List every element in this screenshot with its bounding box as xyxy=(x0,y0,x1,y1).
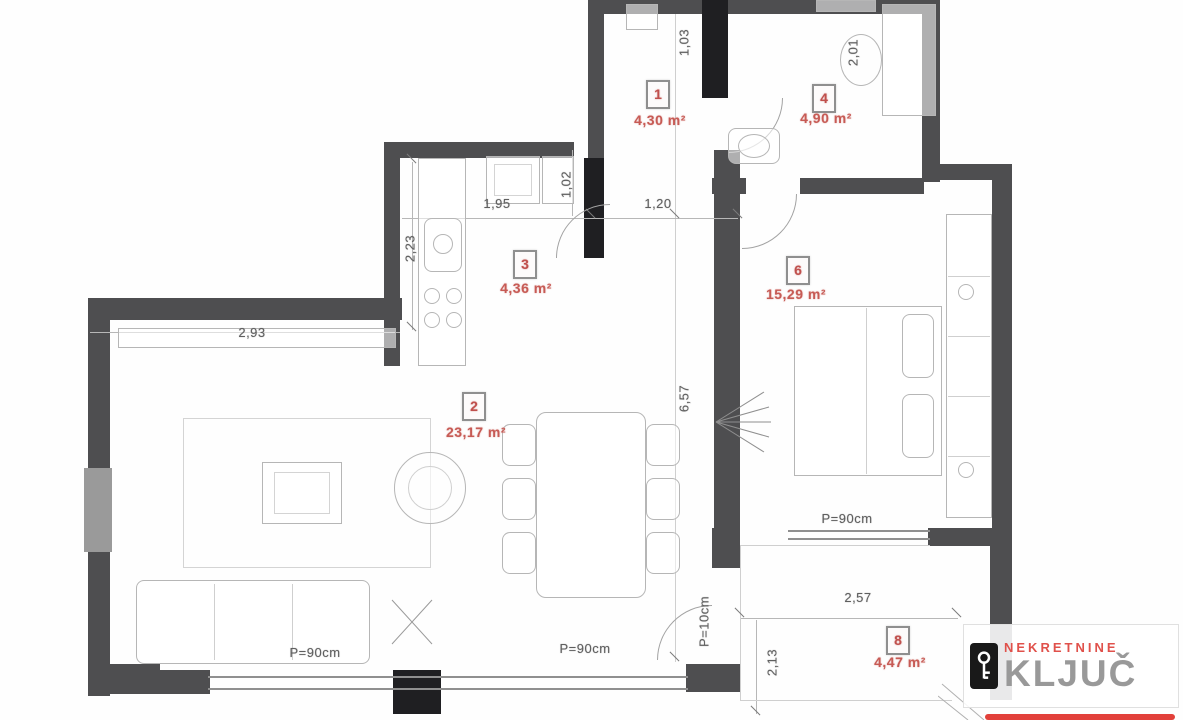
dining-table xyxy=(536,412,646,598)
room-number-box: 2 xyxy=(462,392,486,421)
floor-plan-canvas: 1 4,30 m² 4 4,90 m² 3 4,36 m² 2 23,17 m²… xyxy=(0,0,1183,720)
agency-name: KLJUČ xyxy=(1004,655,1137,692)
parapet-label: P=10cm xyxy=(697,582,712,662)
sink-drain xyxy=(433,234,453,254)
watermark-red-bar xyxy=(985,714,1175,720)
stove-burner xyxy=(446,288,462,304)
dining-chair xyxy=(502,478,536,520)
door-arc-bedroom xyxy=(742,194,797,249)
bed-center-line xyxy=(866,308,867,474)
radiator-symbol xyxy=(714,388,772,456)
window-bedroom-line-1 xyxy=(788,530,930,532)
wardrobe-shelf-line xyxy=(948,396,990,397)
window-bottom-line-1 xyxy=(208,676,688,678)
wall-pier-hall-bath xyxy=(702,0,728,98)
dimension-label: 6,57 xyxy=(677,369,692,429)
key-icon xyxy=(970,643,998,689)
stove-burner xyxy=(424,288,440,304)
pillow xyxy=(902,314,934,378)
wall-terrace-left-pier xyxy=(712,528,740,568)
dimension-label: 2,13 xyxy=(765,633,780,693)
dimension-label: 2,57 xyxy=(828,590,888,605)
dimension-label: 1,20 xyxy=(628,196,688,211)
dining-chair xyxy=(646,478,680,520)
shelf-top xyxy=(816,0,876,12)
wall-bottom-left-pier xyxy=(148,670,210,694)
room-number-box: 1 xyxy=(646,80,670,109)
room-number-box: 6 xyxy=(786,256,810,285)
wall-bedroom-bottom-pier xyxy=(928,528,1012,546)
wardrobe-shelf-line xyxy=(948,276,990,277)
wall-hall-left xyxy=(588,0,604,162)
plant-symbol xyxy=(388,596,436,648)
sofa-cushion-line xyxy=(214,584,215,660)
armchair-inner xyxy=(408,466,452,510)
room-area-label: 4,90 m² xyxy=(778,110,874,126)
washbasin-bowl xyxy=(738,134,770,158)
window-bedroom-line-2 xyxy=(788,538,930,540)
room-area-label: 4,47 m² xyxy=(852,654,948,670)
room-area-label: 4,36 m² xyxy=(478,280,574,296)
wall-central-vertical xyxy=(714,150,740,530)
dimension-label: 2,93 xyxy=(222,325,282,340)
parapet-label: P=90cm xyxy=(807,511,887,526)
coffee-table-inner xyxy=(274,472,330,514)
room-number-box: 3 xyxy=(513,250,537,279)
room-number-box: 4 xyxy=(812,84,836,113)
agency-text-block: NEKRETNINE KLJUČ xyxy=(1004,641,1137,692)
wardrobe-shelf-line xyxy=(948,456,990,457)
dimension-label: 2,23 xyxy=(403,219,418,279)
parapet-label: P=90cm xyxy=(545,641,625,656)
room-area-label: 4,30 m² xyxy=(612,112,708,128)
agency-label: NEKRETNINE xyxy=(1004,641,1137,654)
dim-tick xyxy=(952,608,962,618)
dimension-label: 2,01 xyxy=(846,23,861,83)
parapet-label: P=90cm xyxy=(275,645,355,660)
washing-machine-inner xyxy=(494,164,532,196)
terrace-bottom-line xyxy=(740,700,952,701)
wardrobe-shelf-line xyxy=(948,336,990,337)
wall-bedroom-right xyxy=(992,164,1012,546)
dimension-line-257 xyxy=(740,618,958,619)
wardrobe-knob xyxy=(958,462,974,478)
stove-burner xyxy=(446,312,462,328)
wardrobe-knob xyxy=(958,284,974,300)
window-living-left xyxy=(84,468,112,552)
room-area-label: 23,17 m² xyxy=(428,424,524,440)
room-area-label: 15,29 m² xyxy=(748,286,844,302)
terrace-top-line xyxy=(740,545,930,546)
agency-watermark: NEKRETNINE KLJUČ xyxy=(963,624,1179,708)
stove-burner xyxy=(424,312,440,328)
wall-bottom-right-pier xyxy=(686,664,740,692)
dining-chair xyxy=(502,532,536,574)
window-bottom-line-2 xyxy=(208,688,688,690)
pillow xyxy=(902,394,934,458)
dimension-label: 1,02 xyxy=(559,155,574,215)
dining-chair xyxy=(646,424,680,466)
wall-living-top xyxy=(88,298,402,320)
room-number-box: 8 xyxy=(886,626,910,655)
dimension-label: 1,03 xyxy=(677,13,692,73)
dining-chair xyxy=(646,532,680,574)
terrace-left-line xyxy=(740,546,741,700)
dimension-label: 1,95 xyxy=(467,196,527,211)
hall-cabinet xyxy=(626,4,658,30)
wall-separator-right-piece xyxy=(800,178,924,194)
desk xyxy=(882,4,936,116)
